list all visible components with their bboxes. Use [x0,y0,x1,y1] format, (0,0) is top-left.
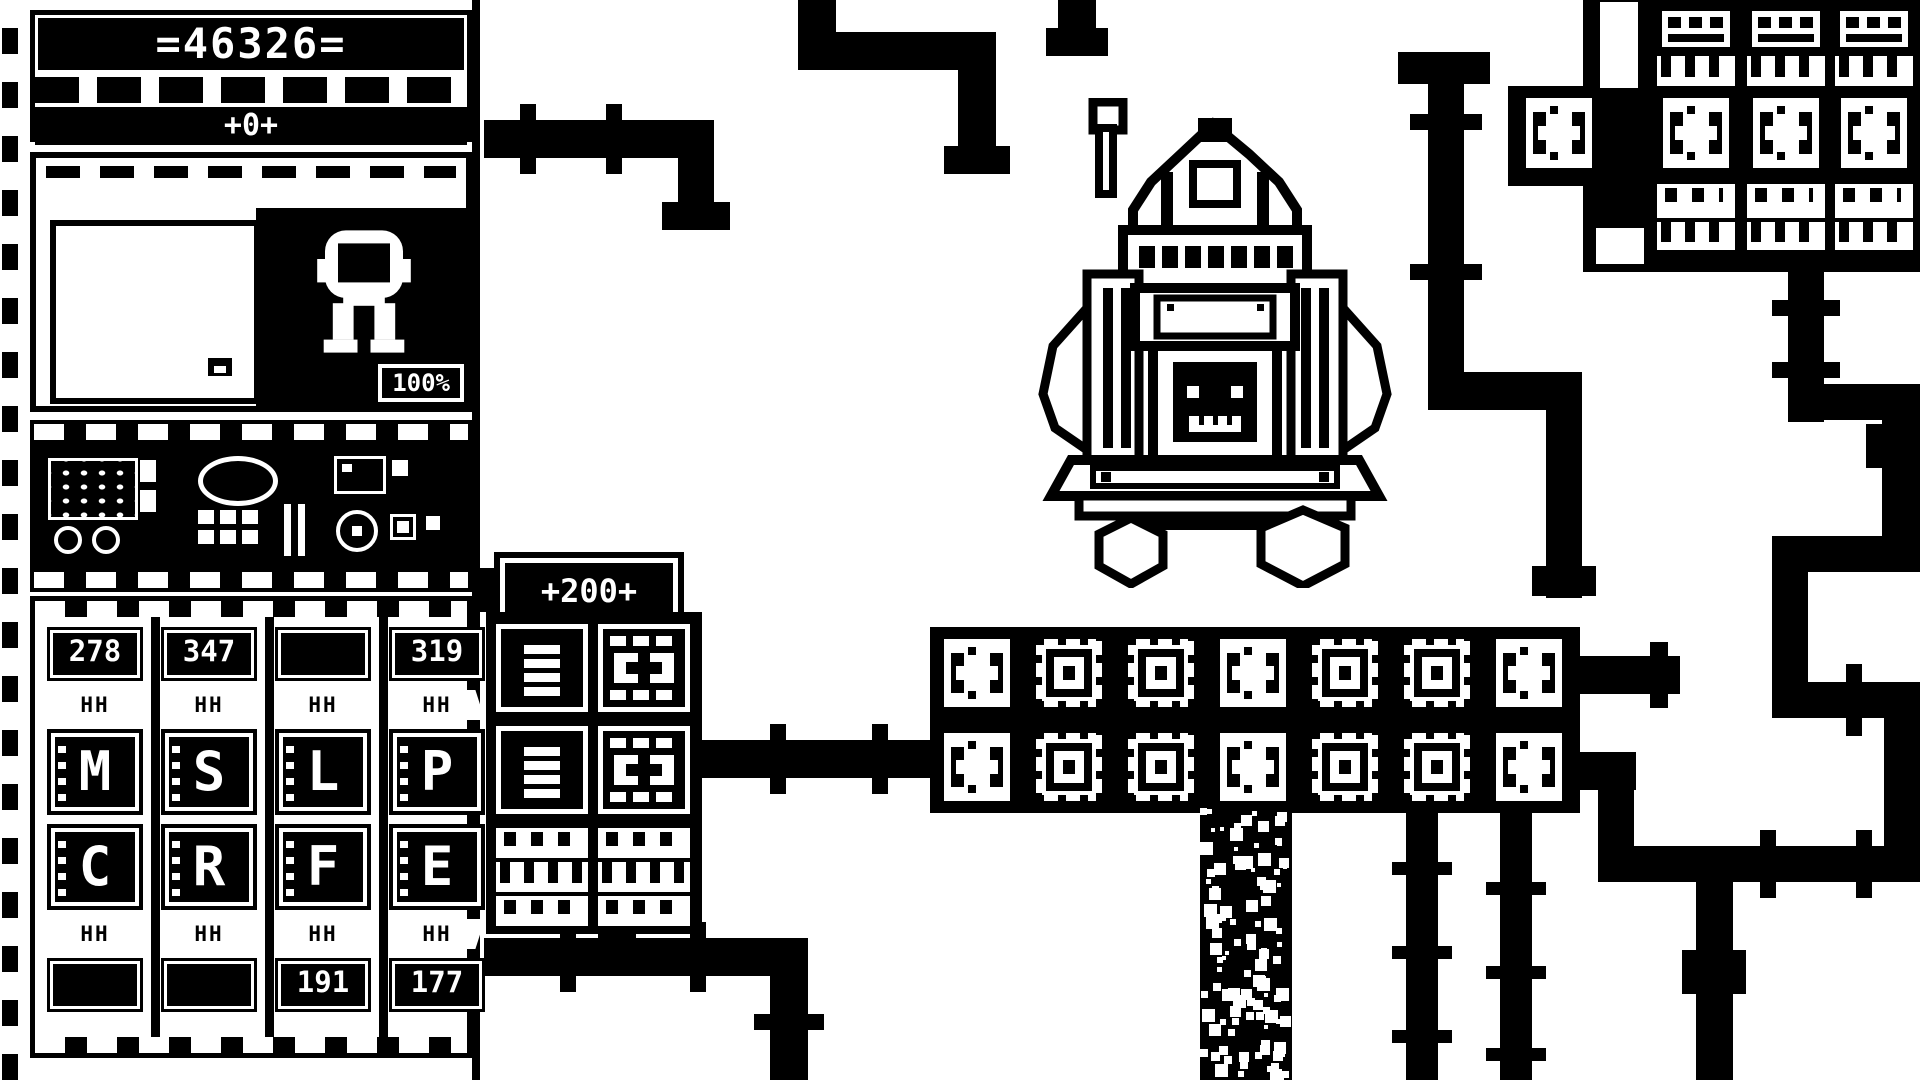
rubble-speck [1216,986,1221,991]
gauge-oval-icon [198,456,278,506]
score-delta: +0+ [35,107,467,145]
module-spool[interactable] [938,633,1016,713]
slot-clamp: HH [161,690,257,720]
pipe-segment [690,922,706,992]
integrity-badge: 100% [378,364,464,402]
slot-count: 278 [47,627,143,681]
keypad-grid[interactable] [198,510,258,544]
rubble-speck [1228,1029,1235,1036]
pipe-segment [1596,228,1644,264]
module-spool[interactable] [1747,92,1825,174]
rubble-speck [1270,1069,1282,1080]
rubble-speck [1219,914,1226,921]
slot-count: 191 [275,958,371,1012]
rubble-speck [1225,951,1229,955]
rubble-speck [1238,1071,1244,1077]
letter-tile[interactable]: E [389,824,485,910]
module-ports[interactable] [598,896,690,926]
slot-count [275,627,371,681]
score-section: =46326= +0+ [30,10,472,142]
module-coupler[interactable] [598,624,690,712]
module-nested[interactable] [1306,633,1384,713]
rubble-speck [1206,879,1211,884]
slider-bar[interactable] [284,504,291,556]
storage-rack: 278 HH M C HH 347 HH S R HH HH L F HH [30,596,472,1058]
slider-bar[interactable] [298,504,305,556]
pipe-segment [754,1014,824,1030]
instrument-cluster-matrix[interactable] [48,452,176,568]
slot-count: 319 [389,627,485,681]
rubble-speck [1253,1000,1263,1010]
rack-divider [151,617,160,1037]
pipe-segment [1392,1030,1452,1043]
rubble-speck [1215,1064,1228,1077]
rubble-speck [1264,918,1277,931]
rubble-speck [1217,957,1223,963]
rubble-speck [1212,928,1222,938]
rubble-speck [1210,943,1222,955]
lamp-icon [92,526,120,554]
pipe-segment [1392,946,1452,959]
button-icon[interactable] [392,460,408,476]
rubble-speck [1254,843,1259,848]
rubble-speck [1200,1049,1208,1057]
rack-trim-bottom [35,1037,467,1053]
module-nested[interactable] [1398,633,1476,713]
letter-tile[interactable]: C [47,824,143,910]
pipe-segment [1486,966,1546,979]
pipe-segment [1598,752,1634,882]
module-comb[interactable] [1657,222,1735,250]
slot-column-3: HH L F HH 191 [275,627,371,1012]
module-doc[interactable] [496,726,588,814]
rubble-speck [1230,828,1243,841]
pipe-segment [606,104,622,174]
rubble-speck [1234,847,1238,851]
button-icon[interactable] [426,516,440,530]
rack-divider [379,617,388,1037]
pipe-segment [1410,264,1482,280]
letter-tile[interactable]: F [275,824,371,910]
pipe-segment [770,938,808,1080]
rubble-speck [1264,1025,1268,1029]
slot-count [47,958,143,1012]
rubble-speck [1246,934,1256,944]
module-ports[interactable] [1835,184,1913,218]
minimap[interactable] [50,220,260,404]
slot-count [161,958,257,1012]
rubble-speck [1252,811,1257,816]
slot-clamp: HH [275,919,371,949]
pipe-segment [520,104,536,174]
rubble-speck [1258,821,1269,832]
slot-clamp: HH [47,919,143,949]
rubble-speck [1217,967,1222,972]
module-spool[interactable] [1214,633,1292,713]
slot-clamp: HH [161,919,257,949]
rubble-speck [1260,884,1266,890]
module-spool[interactable] [1490,633,1568,713]
rubble-speck [1224,1056,1232,1064]
module-comb[interactable] [598,862,690,892]
slot-column-4: 319 HH P E HH 177 [389,627,485,1012]
rubble-speck [1232,1018,1239,1025]
pipe-segment [1772,362,1840,378]
rubble-speck [1211,828,1215,832]
letter-tile[interactable]: R [161,824,257,910]
rubble-speck [1275,816,1285,826]
rubble-speck [1277,883,1281,887]
control-console [30,420,472,592]
map-marker-icon [208,358,232,376]
module-spool[interactable] [1657,92,1735,174]
module-comb[interactable] [1747,56,1825,86]
rubble-speck [1259,949,1269,959]
button-icon[interactable] [140,460,156,482]
lamp-icon [54,526,82,554]
rubble-speck [1244,970,1251,977]
rubble-speck [1201,991,1208,998]
letter-tile[interactable]: L [275,729,371,815]
rubble-speck [1202,1009,1215,1022]
module-comb[interactable] [1835,222,1913,250]
pipe-segment [484,938,808,976]
rubble-speck [1246,900,1258,912]
rubble-speck [1273,956,1281,964]
pipe-segment [1392,862,1452,875]
button-icon[interactable] [140,490,156,512]
slot-clamp: HH [275,690,371,720]
rubble-speck [1260,1045,1270,1055]
module-nested[interactable] [1306,727,1384,807]
console-trim-top [34,424,468,440]
pipe-segment [1856,830,1872,898]
hud-panel: =46326= +0+ 10 [0,0,480,1080]
rubble-speck [1200,808,1207,815]
rubble-speck [1230,919,1236,925]
slot-count: 177 [389,958,485,1012]
pipe-segment [1846,664,1862,736]
module-coupler[interactable] [598,726,690,814]
slot-column-2: 347 HH S R HH [161,627,257,1012]
rubble-speck [1214,863,1226,875]
module-vent[interactable] [1835,6,1913,52]
pipe-segment [1410,114,1482,130]
mini-screen-icon [334,456,386,494]
slot-count: 347 [161,627,257,681]
robot-portrait: 100% [256,208,472,408]
monitor-section: 100% [30,152,472,412]
rubble-speck [1274,995,1281,1002]
exhaust-rubble-column [1200,807,1292,1080]
pipe-segment [1046,28,1108,56]
pipe-segment [958,32,996,158]
pipe-segment [1546,372,1582,598]
module-vent[interactable] [1747,6,1825,52]
pipe-segment [1500,806,1532,1080]
rubble-speck [1274,869,1280,875]
rubble-speck [1264,993,1268,997]
module-spool[interactable] [1214,727,1292,807]
robot-portrait-icon [286,220,442,376]
pipe-segment [1772,300,1840,316]
rubble-speck [1253,975,1265,987]
module-doc[interactable] [496,624,588,712]
pipe-segment [1600,2,1638,88]
pipe-segment [1486,882,1546,895]
module-spool[interactable] [1520,92,1598,174]
rubble-speck [1255,921,1261,927]
rubble-speck [1209,888,1221,900]
score-counter: =46326= [35,15,467,73]
module-nested[interactable] [1122,727,1200,807]
module-ports[interactable] [496,896,588,926]
pipe-segment [662,202,730,230]
module-vent[interactable] [1657,6,1735,52]
module-ports[interactable] [496,828,588,858]
rubble-speck [1240,1061,1248,1069]
score-divider [35,73,467,107]
toggle-icon[interactable] [390,514,416,540]
module-spool[interactable] [938,727,1016,807]
rubble-speck [1273,1051,1283,1061]
module-comb[interactable] [1835,56,1913,86]
rubble-speck [1230,1006,1241,1017]
rubble-speck [1255,959,1267,971]
pipe-segment [944,146,1010,174]
rubble-speck [1240,856,1253,869]
module-ports[interactable] [1657,184,1735,218]
rubble-speck [1220,1019,1226,1025]
rubble-speck [1246,1012,1254,1020]
slot-clamp: HH [47,690,143,720]
rubble-speck [1219,1046,1228,1055]
rack-divider [265,617,274,1037]
game-viewport: =46326= +0+ 10 [0,0,1920,1080]
dial-icon[interactable] [336,510,378,552]
pipe-segment [560,922,576,992]
rubble-speck [1220,827,1224,831]
rubble-speck [1241,815,1252,826]
pipe-segment [1532,566,1596,596]
rubble-speck [1256,1012,1264,1020]
module-comb[interactable] [1657,56,1735,86]
letter-tile[interactable]: P [389,729,485,815]
pipe-segment [872,724,888,794]
letter-tile[interactable]: S [161,729,257,815]
rubble-speck [1209,1024,1221,1036]
slot-clamp: HH [389,919,485,949]
rubble-speck [1258,853,1271,866]
module-nested[interactable] [1030,633,1108,713]
module-nested[interactable] [1122,633,1200,713]
slot-clamp: HH [389,690,485,720]
rubble-speck [1280,1016,1291,1027]
module-spool[interactable] [1835,92,1913,174]
rubble-speck [1261,896,1271,906]
module-spool[interactable] [1490,727,1568,807]
module-nested[interactable] [1398,727,1476,807]
rubble-speck [1233,856,1241,864]
module-ports[interactable] [1747,184,1825,218]
dot-matrix-display [48,458,138,520]
letter-tile[interactable]: M [47,729,143,815]
module-nested[interactable] [1030,727,1108,807]
pipe-segment [1682,950,1746,994]
pipe-segment [1760,830,1776,898]
pipe-segment [770,724,786,794]
pipe-segment [1486,1048,1546,1061]
rubble-speck [1277,841,1282,846]
rubble-speck [1234,939,1241,946]
rubble-speck [1277,942,1282,947]
module-ports[interactable] [598,828,690,858]
central-machine-sprite [1035,98,1395,588]
rubble-speck [1276,1019,1281,1024]
instrument-cluster-dial[interactable] [192,452,320,568]
pipe-segment [1650,642,1668,708]
rubble-speck [1206,916,1219,929]
rubble-speck [1207,809,1212,814]
instrument-cluster-scope[interactable] [334,452,464,568]
monitor-divider [46,166,456,178]
rubble-speck [1279,858,1289,868]
rubble-speck [1228,988,1240,1000]
rubble-speck [1282,1071,1289,1078]
rubble-speck [1200,842,1213,855]
pipe-segment [1428,52,1464,410]
pipe-segment [1866,424,1920,468]
slot-column-1: 278 HH M C HH [47,627,143,1012]
pipe-segment [700,740,938,778]
module-comb[interactable] [496,862,588,892]
module-comb[interactable] [1747,222,1825,250]
rack-trim-top [35,601,467,617]
console-trim-bottom [34,572,468,588]
